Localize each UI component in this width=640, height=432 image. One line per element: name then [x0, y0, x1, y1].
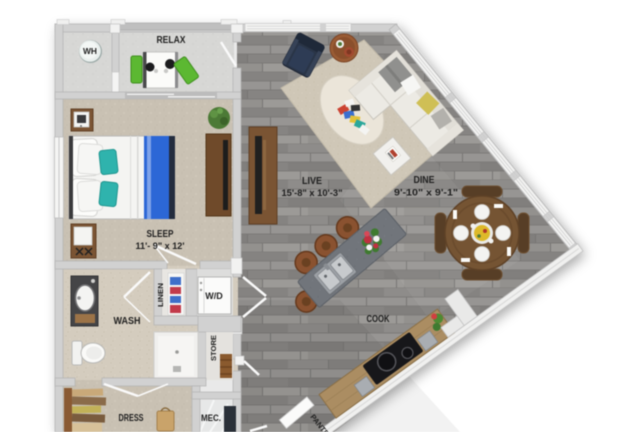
svg-text:DINE: DINE	[414, 175, 435, 186]
svg-text:MEC.: MEC.	[201, 413, 221, 423]
svg-text:COOK: COOK	[367, 314, 391, 325]
svg-text:SLEEP: SLEEP	[147, 229, 174, 240]
svg-text:STORE: STORE	[209, 335, 218, 361]
svg-text:WASH: WASH	[114, 316, 141, 327]
svg-text:DRESS: DRESS	[119, 413, 144, 424]
svg-text:RELAX: RELAX	[157, 35, 186, 46]
svg-text:9'-10" x 9'-1": 9'-10" x 9'-1"	[394, 188, 458, 198]
svg-text:W/D: W/D	[205, 291, 223, 301]
svg-text:LIVE: LIVE	[302, 176, 322, 187]
svg-text:LINEN: LINEN	[156, 283, 165, 307]
svg-text:11'- 9" x 12': 11'- 9" x 12'	[136, 241, 185, 251]
svg-text:WH: WH	[83, 47, 97, 56]
svg-text:15'-8" x 10'-3": 15'-8" x 10'-3"	[282, 188, 343, 198]
